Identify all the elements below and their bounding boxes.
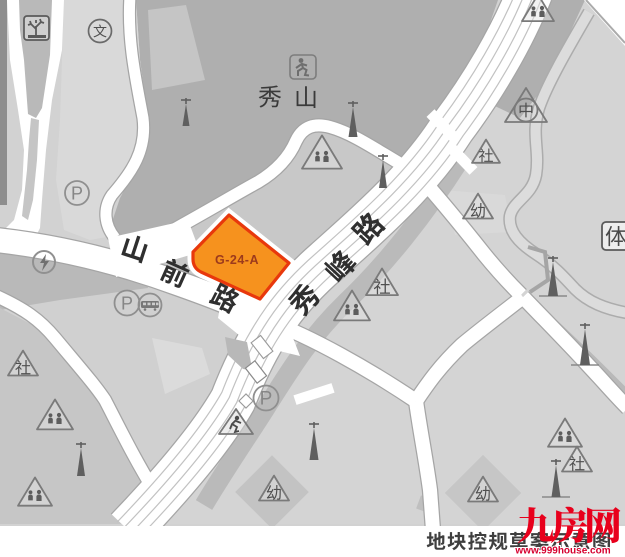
svg-text:P: P <box>71 184 83 204</box>
svg-text:P: P <box>121 294 133 314</box>
svg-text:www.999house.com: www.999house.com <box>514 546 610 557</box>
svg-text:P: P <box>260 389 273 410</box>
svg-text:G-24-A: G-24-A <box>215 253 259 267</box>
